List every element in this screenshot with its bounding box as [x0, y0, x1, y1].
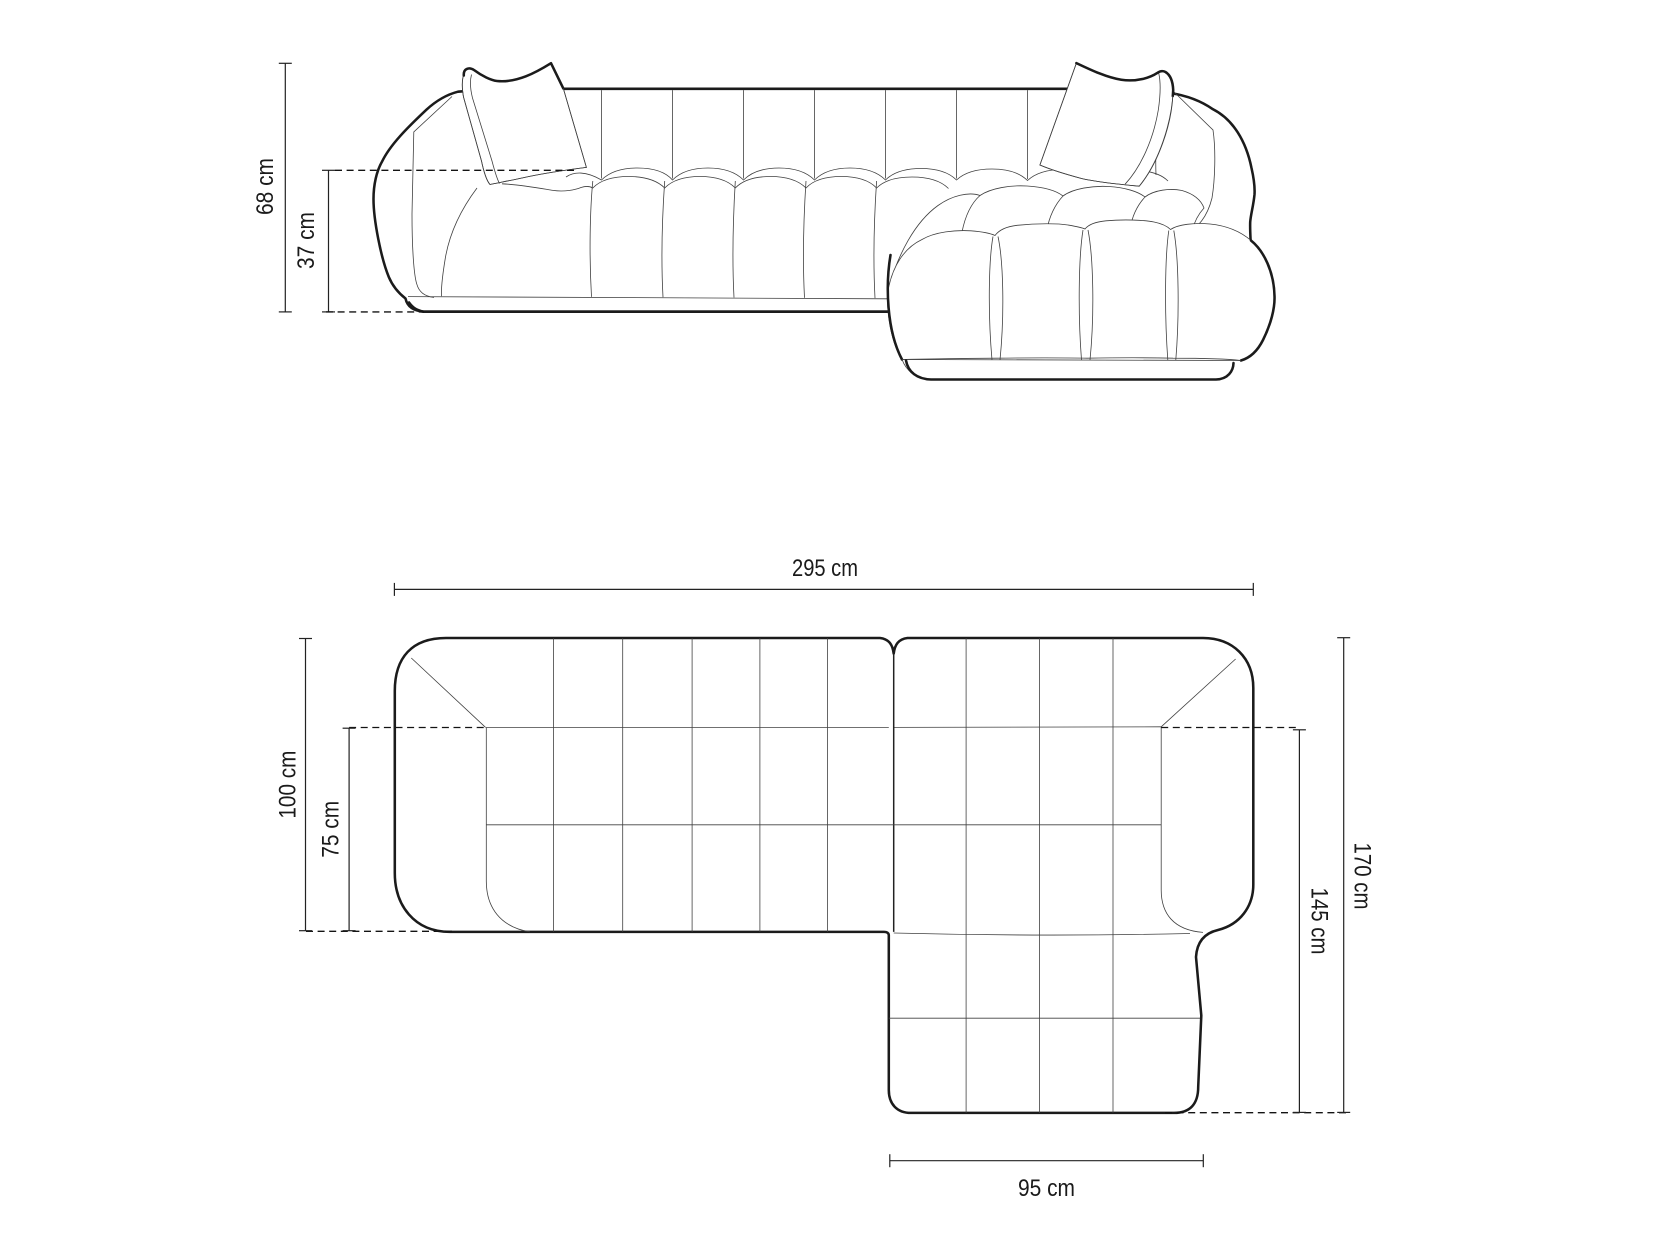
svg-text:100 cm: 100 cm [275, 751, 302, 819]
svg-text:295 cm: 295 cm [792, 555, 858, 582]
svg-text:68 cm: 68 cm [252, 158, 279, 215]
svg-text:145 cm: 145 cm [1306, 888, 1333, 955]
svg-text:37 cm: 37 cm [293, 212, 320, 269]
svg-text:95 cm: 95 cm [1018, 1175, 1075, 1202]
svg-text:170 cm: 170 cm [1348, 843, 1375, 910]
svg-text:75 cm: 75 cm [317, 801, 344, 858]
